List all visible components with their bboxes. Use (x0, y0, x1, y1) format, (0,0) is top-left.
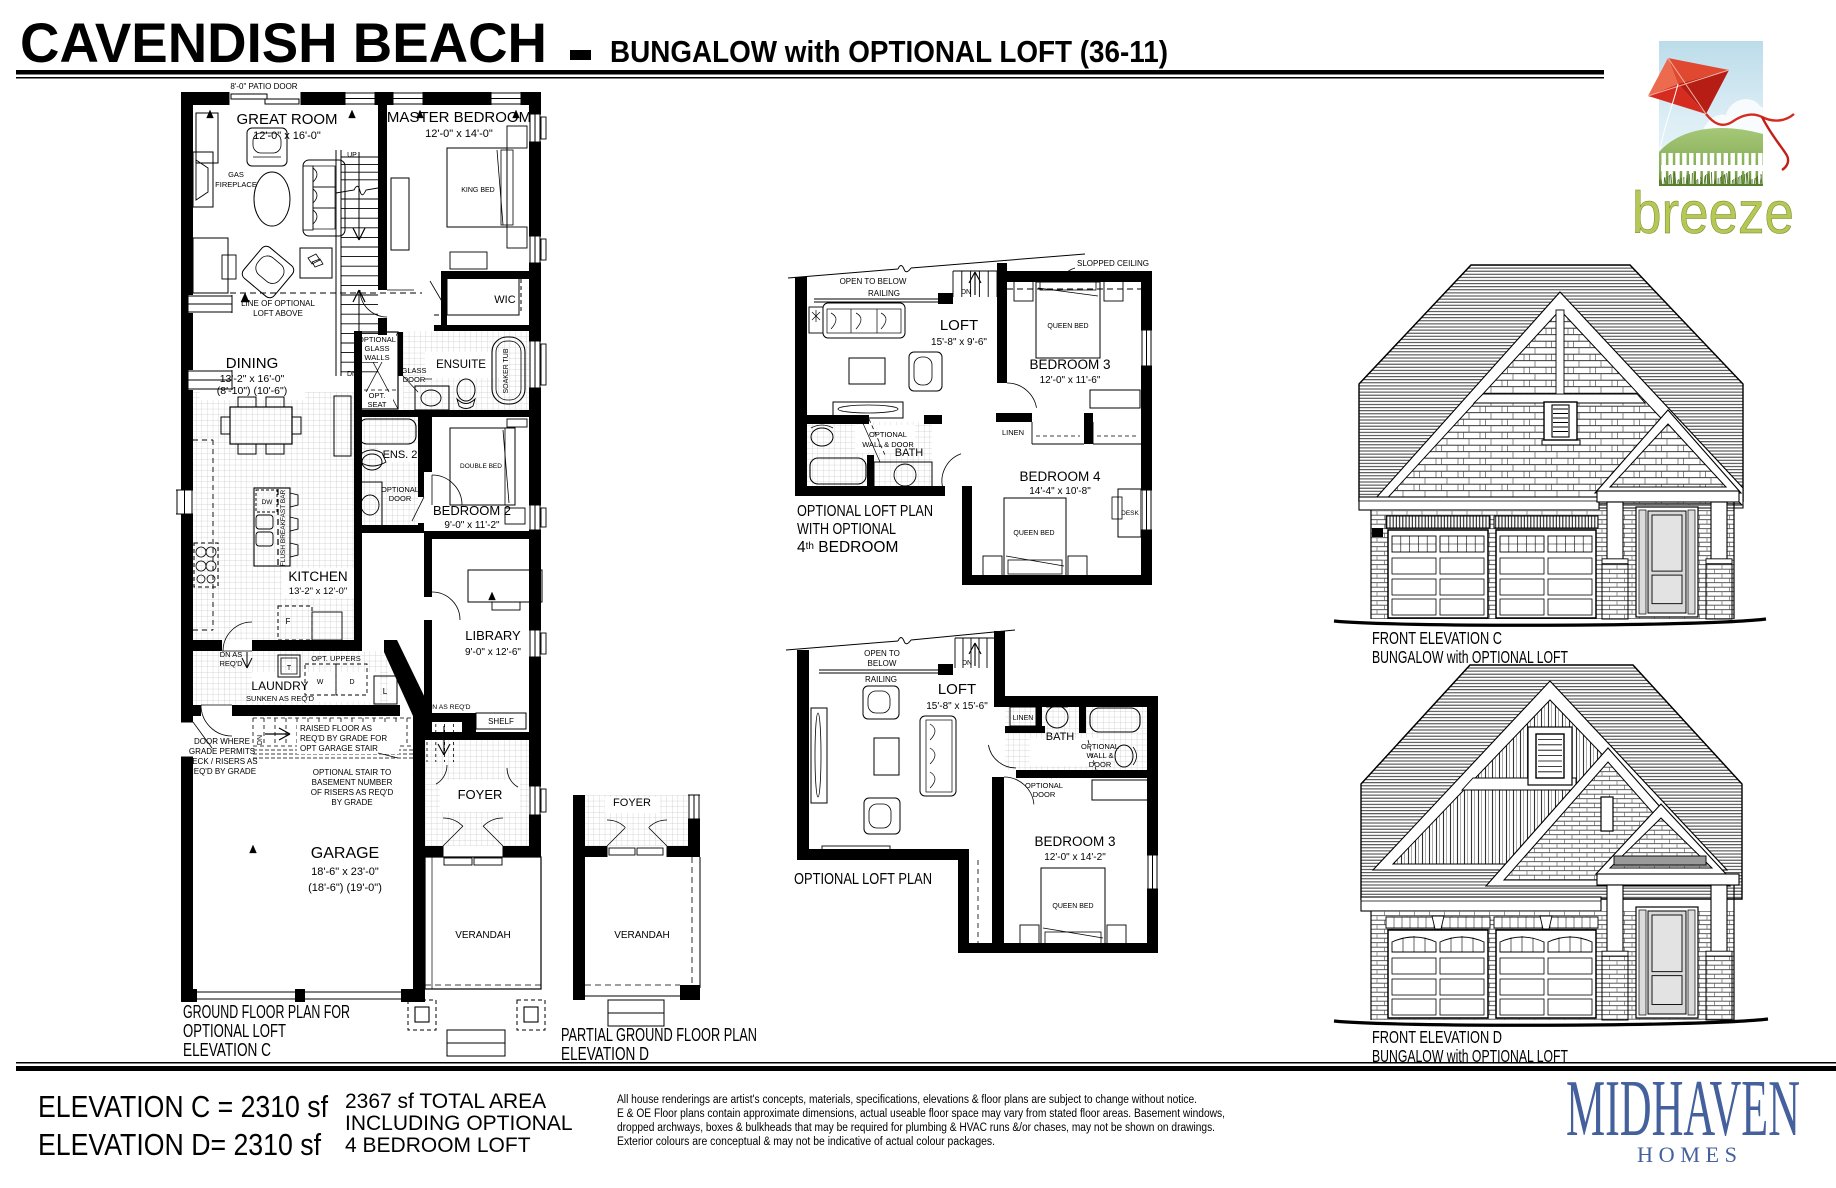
svg-text:FLUSH BREAKFAST BAR: FLUSH BREAKFAST BAR (280, 489, 287, 566)
svg-text:SOAKER TUB: SOAKER TUB (503, 348, 510, 393)
svg-text:OPTIONAL LOFT PLAN: OPTIONAL LOFT PLAN (794, 871, 932, 888)
svg-text:13'-2" x 12'-0": 13'-2" x 12'-0" (289, 586, 347, 597)
svg-text:ENSUITE: ENSUITE (436, 359, 486, 371)
svg-text:E & OE Floor plans contain ap: E & OE Floor plans contain approximate d… (617, 1108, 1225, 1120)
svg-text:DOOR: DOOR (1089, 760, 1112, 769)
svg-text:12'-0" x 14'-2": 12'-0" x 14'-2" (1044, 852, 1106, 863)
svg-text:15'-8" x 9'-6": 15'-8" x 9'-6" (931, 337, 987, 348)
svg-text:RAISED FLOOR AS: RAISED FLOOR AS (300, 724, 372, 733)
svg-text:DW: DW (262, 499, 274, 506)
svg-text:12'-0" x 14'-0": 12'-0" x 14'-0" (425, 128, 493, 140)
svg-text:L: L (383, 687, 388, 696)
svg-text:LINEN: LINEN (1002, 428, 1024, 437)
svg-text:OPT. UPPERS: OPT. UPPERS (311, 654, 361, 663)
svg-text:LAUNDRY: LAUNDRY (251, 679, 308, 693)
svg-text:RAILING: RAILING (865, 675, 897, 684)
svg-text:OPTIONAL LOFT PLAN: OPTIONAL LOFT PLAN (797, 503, 933, 520)
svg-text:FRONT ELEVATION C: FRONT ELEVATION C (1372, 628, 1502, 648)
svg-text:DOOR: DOOR (389, 494, 412, 503)
svg-text:BATH: BATH (895, 447, 924, 459)
svg-text:REQ'D BY GRADE FOR: REQ'D BY GRADE FOR (300, 734, 387, 743)
svg-text:18'-6" x 23'-0": 18'-6" x 23'-0" (311, 866, 379, 878)
svg-text:KING BED: KING BED (461, 187, 494, 194)
svg-text:LIBRARY: LIBRARY (465, 628, 521, 643)
svg-text:(18'-6") (19'-0"): (18'-6") (19'-0") (308, 882, 382, 894)
svg-text:F: F (286, 617, 291, 626)
svg-text:BEDROOM 2: BEDROOM 2 (433, 503, 511, 518)
svg-text:QUEEN BED: QUEEN BED (1052, 903, 1093, 910)
svg-text:OPTIONAL LOFT: OPTIONAL LOFT (183, 1020, 286, 1041)
svg-text:QUEEN BED: QUEEN BED (1047, 323, 1088, 330)
svg-text:GLASS: GLASS (401, 366, 426, 375)
svg-text:KITCHEN: KITCHEN (288, 569, 347, 584)
svg-text:DN: DN (257, 735, 264, 745)
svg-text:2367 sf TOTAL AREA: 2367 sf TOTAL AREA (345, 1090, 546, 1113)
svg-text:SUNKEN AS REQ'D: SUNKEN AS REQ'D (246, 694, 315, 703)
svg-text:REQ'D BY GRADE: REQ'D BY GRADE (188, 767, 256, 776)
svg-text:15'-8" x 15'-6": 15'-8" x 15'-6" (926, 701, 988, 712)
svg-text:FRONT ELEVATION D: FRONT ELEVATION D (1372, 1027, 1502, 1047)
svg-text:BUNGALOW with OPTIONAL LOFT: BUNGALOW with OPTIONAL LOFT (1372, 647, 1568, 667)
svg-text:LOFT ABOVE: LOFT ABOVE (253, 309, 303, 318)
svg-text:RAILING: RAILING (868, 289, 900, 298)
svg-text:ELEVATION D= 2310 sf: ELEVATION D= 2310 sf (38, 1127, 321, 1162)
svg-text:UP: UP (347, 152, 357, 159)
svg-text:BEDROOM 4: BEDROOM 4 (1019, 469, 1101, 484)
svg-text:OPTIONAL STAIR TO: OPTIONAL STAIR TO (313, 768, 391, 777)
svg-text:OPTIONAL: OPTIONAL (1081, 742, 1119, 751)
svg-text:OPT.: OPT. (369, 391, 386, 400)
svg-text:DOOR WHERE: DOOR WHERE (194, 737, 250, 746)
svg-text:SLOPPED CEILING: SLOPPED CEILING (1077, 259, 1149, 268)
svg-text:14'-4" x 10'-8": 14'-4" x 10'-8" (1029, 486, 1091, 497)
svg-text:DN: DN (962, 660, 972, 667)
svg-text:9'-0" x 11'-2": 9'-0" x 11'-2" (444, 520, 500, 531)
svg-text:PARTIAL GROUND FLOOR PLAN: PARTIAL GROUND FLOOR PLAN (561, 1024, 757, 1045)
svg-text:LINEN: LINEN (1013, 715, 1034, 722)
svg-text:OPTIONAL: OPTIONAL (381, 485, 419, 494)
svg-text:REQ'D: REQ'D (219, 659, 243, 668)
svg-text:MASTER BEDROOM: MASTER BEDROOM (387, 109, 531, 126)
svg-text:W: W (317, 679, 324, 686)
svg-text:OPTIONAL: OPTIONAL (358, 335, 396, 344)
svg-text:8'-0" PATIO DOOR: 8'-0" PATIO DOOR (230, 82, 297, 91)
svg-text:WITH OPTIONAL: WITH OPTIONAL (797, 521, 896, 538)
svg-text:BEDROOM 3: BEDROOM 3 (1029, 357, 1110, 372)
svg-text:DN: DN (961, 289, 971, 296)
svg-text:GRADE PERMITS: GRADE PERMITS (189, 747, 255, 756)
svg-text:Exterior colours are conceptua: Exterior colours are conceptual & may no… (617, 1136, 995, 1148)
svg-text:DOUBLE BED: DOUBLE BED (460, 463, 502, 470)
svg-text:OPEN TO: OPEN TO (864, 649, 900, 658)
svg-text:13'-2" x 16'-0": 13'-2" x 16'-0" (220, 373, 285, 385)
svg-text:4 BEDROOM LOFT: 4 BEDROOM LOFT (345, 1134, 531, 1157)
svg-text:QUEEN BED: QUEEN BED (1013, 530, 1054, 537)
svg-text:BASEMENT NUMBER: BASEMENT NUMBER (312, 778, 393, 787)
svg-text:MIDHAVEN: MIDHAVEN (1566, 1065, 1800, 1153)
svg-text:GARAGE: GARAGE (311, 845, 379, 862)
svg-text:BEDROOM 3: BEDROOM 3 (1034, 834, 1115, 849)
svg-text:DOOR: DOOR (1033, 790, 1056, 799)
svg-text:9'-0" x 12'-6": 9'-0" x 12'-6" (465, 647, 521, 658)
svg-text:SEAT: SEAT (367, 400, 386, 409)
svg-text:GROUND FLOOR PLAN FOR: GROUND FLOOR PLAN FOR (183, 1001, 350, 1022)
svg-text:OPTIONAL: OPTIONAL (1025, 781, 1063, 790)
svg-text:D: D (349, 679, 354, 686)
svg-text:dropped archways, boxes & bulk: dropped archways, boxes & bulkheads that… (617, 1122, 1215, 1134)
svg-text:FOYER: FOYER (458, 787, 503, 802)
svg-text:BELOW: BELOW (868, 659, 897, 668)
svg-text:OPT GARAGE STAIR: OPT GARAGE STAIR (300, 744, 378, 753)
svg-text:All house renderings are artis: All house renderings are artist's concep… (617, 1094, 1197, 1106)
svg-text:T: T (287, 665, 292, 672)
svg-text:H O M E S: H O M E S (1637, 1142, 1737, 1167)
svg-text:CAVENDISH BEACH: CAVENDISH BEACH (20, 11, 547, 74)
svg-text:ELEVATION C: ELEVATION C (183, 1039, 271, 1060)
svg-text:BY GRADE: BY GRADE (331, 798, 372, 807)
svg-text:WIC: WIC (494, 294, 515, 306)
svg-text:INCLUDING OPTIONAL: INCLUDING OPTIONAL (345, 1112, 573, 1135)
svg-text:SHELF: SHELF (488, 717, 514, 726)
svg-text:DINING: DINING (226, 355, 279, 372)
svg-text:DN AS REQ'D: DN AS REQ'D (427, 704, 470, 711)
svg-text:DN AS: DN AS (220, 650, 243, 659)
svg-text:WALL &: WALL & (1087, 751, 1114, 760)
svg-text:(8'-10") (10'-6"): (8'-10") (10'-6") (217, 385, 287, 397)
svg-text:GLASS: GLASS (364, 344, 389, 353)
svg-text:LOFT: LOFT (938, 681, 976, 698)
svg-text:breeze: breeze (1632, 180, 1794, 246)
svg-text:BATH: BATH (1046, 731, 1075, 743)
svg-text:ELEVATION D: ELEVATION D (561, 1043, 649, 1064)
svg-text:DECK / RISERS AS: DECK / RISERS AS (186, 757, 257, 766)
svg-text:WALLS: WALLS (364, 353, 389, 362)
svg-text:BUNGALOW with OPTIONAL LOFT: BUNGALOW with OPTIONAL LOFT (1372, 1046, 1568, 1066)
svg-text:FIREPLACE: FIREPLACE (215, 180, 257, 189)
svg-text:GREAT ROOM: GREAT ROOM (236, 111, 337, 128)
svg-text:12'-0" x 11'-6": 12'-0" x 11'-6" (1040, 375, 1101, 386)
svg-text:VERANDAH: VERANDAH (455, 930, 511, 941)
svg-text:GAS: GAS (228, 170, 244, 179)
svg-text:OPEN TO BELOW: OPEN TO BELOW (840, 277, 907, 286)
svg-text:VERANDAH: VERANDAH (614, 930, 670, 941)
svg-text:OF RISERS AS REQ'D: OF RISERS AS REQ'D (311, 788, 394, 797)
svg-text:OPTIONAL: OPTIONAL (869, 430, 907, 439)
svg-text:DESK: DESK (1121, 510, 1139, 517)
svg-text:BUNGALOW with OPTIONAL LOFT (3: BUNGALOW with OPTIONAL LOFT (36-11) (610, 34, 1168, 69)
svg-text:ELEVATION C = 2310 sf: ELEVATION C = 2310 sf (38, 1089, 328, 1124)
svg-text:LOFT: LOFT (940, 317, 978, 334)
svg-text:FOYER: FOYER (613, 797, 651, 809)
svg-text:LINE OF OPTIONAL: LINE OF OPTIONAL (241, 299, 315, 308)
svg-text:ENS. 2: ENS. 2 (383, 449, 418, 461)
